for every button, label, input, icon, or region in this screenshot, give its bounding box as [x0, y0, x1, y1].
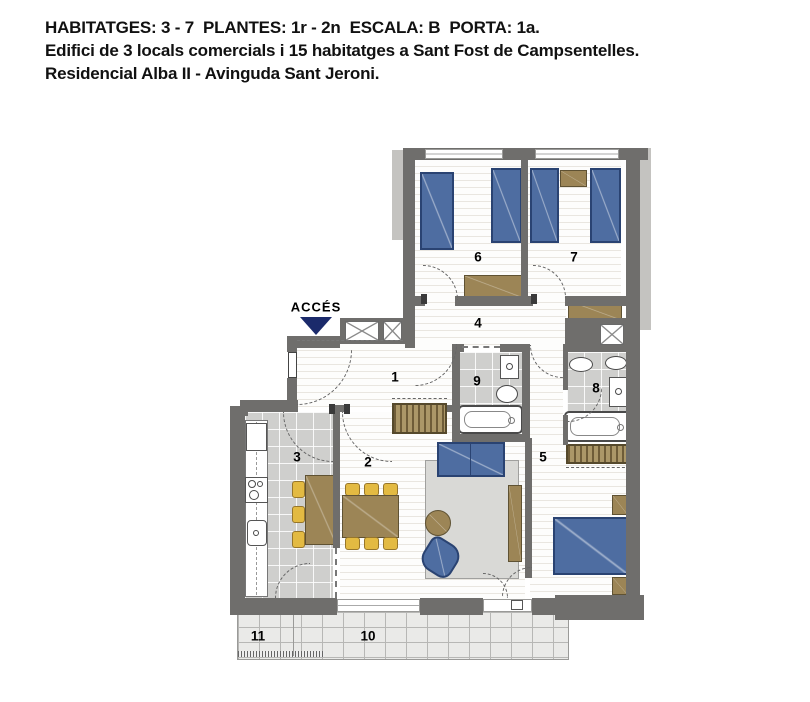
room-label-9: 9 — [473, 374, 481, 389]
access-label: ACCÉS — [291, 300, 342, 315]
bath8-sink-drain-icon — [615, 388, 622, 395]
wall-neighbor — [392, 150, 403, 240]
wardrobe-hall — [392, 403, 447, 434]
wall-segment — [532, 598, 555, 615]
wall-segment — [626, 148, 640, 620]
wall-segment — [230, 598, 337, 615]
room-label-11: 11 — [251, 629, 265, 644]
bed-room6-left — [420, 172, 454, 250]
chair — [383, 537, 398, 550]
wall-segment — [420, 598, 483, 615]
shaft-cross-icon — [345, 321, 379, 341]
shaft-cross-icon — [600, 324, 624, 345]
header-line-2: Edifici de 3 locals comercials i 15 habi… — [45, 41, 639, 61]
drain-icon — [253, 530, 259, 536]
tv-cabinet — [508, 485, 522, 562]
room-label-1: 1 — [391, 370, 399, 385]
terrace-door-threshold — [483, 599, 532, 612]
fridge — [246, 423, 267, 451]
bath9-toilet — [496, 385, 518, 403]
window-room7 — [535, 149, 619, 159]
bath8-toilet — [569, 357, 593, 372]
chair — [364, 537, 379, 550]
burner-icon — [248, 480, 256, 488]
wall-segment — [565, 296, 626, 306]
wardrobe-room5 — [566, 444, 630, 464]
dining-table — [342, 495, 399, 538]
chair — [292, 481, 305, 498]
door-post — [344, 404, 350, 414]
shaft-cross-icon — [383, 321, 402, 341]
chair — [345, 537, 360, 550]
header-line-1: HABITATGES: 3 - 7 PLANTES: 1r - 2n ESCAL… — [45, 18, 540, 38]
chair — [292, 531, 305, 548]
nightstand-room7 — [560, 170, 587, 187]
terrace-hatch-edge — [238, 651, 324, 657]
desk-room6 — [464, 275, 522, 298]
bed-room7-right — [590, 168, 621, 243]
room-label-8: 8 — [592, 381, 600, 396]
wardrobe-room5-doors-dashed — [566, 467, 630, 468]
entry-door-leaf — [288, 352, 297, 378]
burner-icon — [249, 490, 259, 500]
bath8-bidet — [605, 356, 627, 370]
wall-segment — [333, 412, 340, 548]
door-post — [421, 294, 427, 304]
wall-segment — [555, 595, 644, 620]
burner-icon — [257, 481, 263, 487]
bed-room7-left — [530, 168, 559, 243]
floor-plan-page: HABITATGES: 3 - 7 PLANTES: 1r - 2n ESCAL… — [0, 0, 810, 702]
sliding-door-bath9 — [462, 346, 500, 348]
chair — [292, 506, 305, 523]
sofa — [437, 442, 505, 477]
wall-segment — [563, 344, 632, 352]
room-label-6: 6 — [474, 250, 482, 265]
side-table-round — [425, 510, 451, 536]
opening-hall-top — [297, 340, 403, 341]
wall-segment — [405, 296, 415, 348]
wall-segment — [455, 296, 533, 306]
wall-segment — [525, 438, 532, 578]
wardrobe-hall-doors-dashed — [392, 398, 447, 399]
room-label-4: 4 — [474, 316, 482, 331]
wall-segment — [452, 434, 530, 442]
bath9-sink-drain-icon — [506, 363, 513, 370]
wall-segment — [240, 400, 298, 412]
room-label-7: 7 — [570, 250, 578, 265]
wall-segment — [522, 344, 530, 442]
header-line-3: Residencial Alba II - Avinguda Sant Jero… — [45, 64, 379, 84]
terrace-door-sill — [511, 600, 523, 610]
bed-room5-double — [553, 517, 628, 575]
opening-kitchen-living — [335, 548, 337, 598]
wall-segment — [563, 352, 568, 390]
window-living — [337, 599, 420, 612]
sofa-cushion-line — [470, 444, 471, 475]
wall-segment — [521, 158, 528, 302]
bed-room6-right — [491, 168, 522, 243]
wall-neighbor — [640, 148, 651, 330]
room-label-3: 3 — [293, 450, 301, 465]
window-room6 — [425, 149, 503, 159]
bath9-bathtub — [458, 405, 523, 434]
wall-segment — [230, 412, 245, 615]
access-arrow-icon — [300, 317, 332, 335]
wall-segment — [287, 336, 297, 352]
door-post — [531, 294, 537, 304]
room-label-2: 2 — [364, 455, 372, 470]
door-post — [329, 404, 335, 414]
terrace-divider — [293, 612, 294, 656]
room-label-10: 10 — [360, 629, 375, 644]
room-label-5: 5 — [539, 450, 547, 465]
